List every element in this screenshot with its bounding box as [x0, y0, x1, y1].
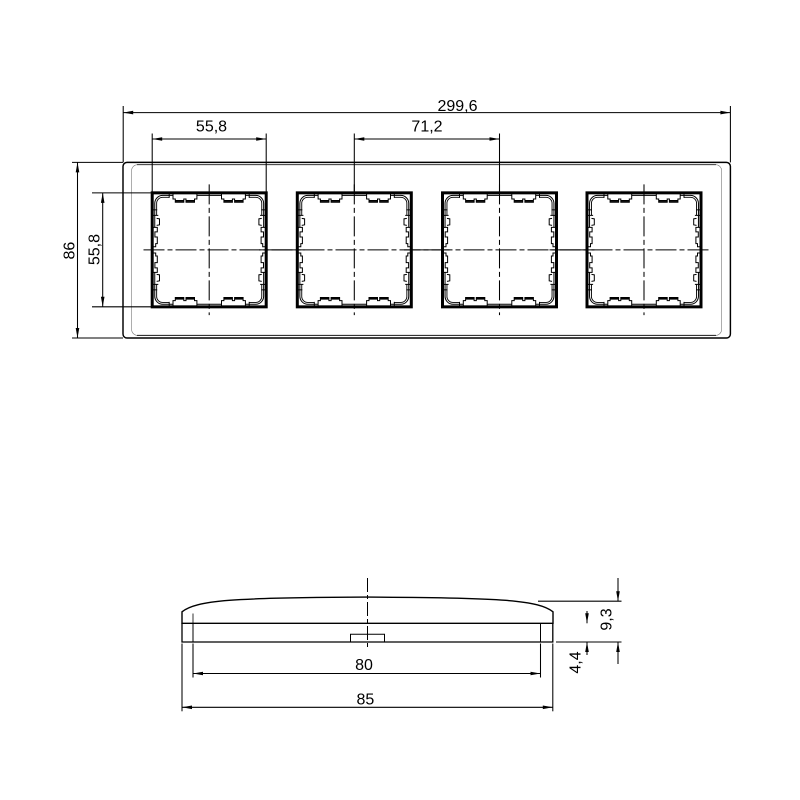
svg-text:4,4: 4,4 [568, 651, 585, 673]
svg-text:299,6: 299,6 [437, 98, 477, 115]
svg-text:9,3: 9,3 [599, 608, 616, 630]
svg-text:86: 86 [62, 242, 79, 260]
svg-text:85: 85 [357, 692, 375, 709]
svg-text:71,2: 71,2 [411, 119, 442, 136]
svg-text:55,8: 55,8 [87, 234, 104, 265]
svg-text:55,8: 55,8 [196, 119, 227, 136]
svg-text:80: 80 [355, 657, 373, 674]
